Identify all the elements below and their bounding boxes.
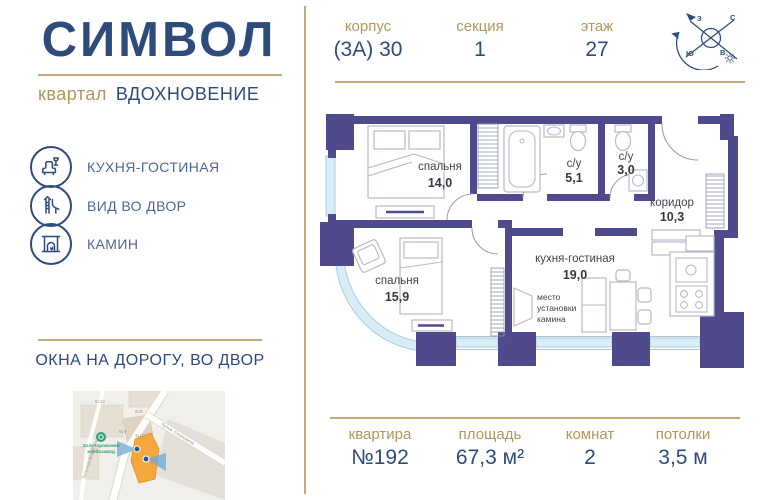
fridge [686,236,714,251]
map-building-label: 6с12 [95,399,105,404]
stat-label: комнат [540,426,640,443]
stat-label: потолки [633,426,733,443]
stat-value: №192 [330,446,430,470]
window [650,338,700,347]
bathtub [504,126,540,192]
stat-area: площадь 67,3 м² [440,426,540,470]
stat-label: этаж [547,18,647,35]
armchair [352,239,387,274]
compass-icon: З С Ю В [664,8,756,75]
stat-ceiling: потолки 3,5 м [633,426,733,470]
fireplace-unit [514,288,532,326]
stat-apartment: квартира №192 [330,426,430,470]
map-building-label: 6с9 [119,429,127,434]
room-name: коридор [650,197,694,209]
feature-label: ВИД ВО ДВОР [87,198,186,214]
room-area: 15,9 [385,290,409,304]
compass-west: З [697,14,702,23]
room-name: спальня [375,275,419,287]
tv-unit [582,278,606,332]
stat-value: (3А) 30 [318,38,418,62]
toilet [615,125,631,151]
fireplace-note: место [537,292,561,302]
stat-rooms: комнат 2 [540,426,640,470]
map-building-label: 11с2 [135,433,145,438]
stat-floor: этаж 27 [547,18,647,62]
stat-value: 27 [547,38,647,62]
playground-slide-icon [30,185,72,227]
quarter-label: квартал [38,84,107,104]
room-name: спальня [418,161,462,173]
stat-section: секция 1 [430,18,530,62]
room-area: 3,0 [617,163,634,177]
compass-south: Ю [686,49,694,58]
room-area: 10,3 [660,210,684,224]
room-area: 14,0 [428,176,452,190]
header-divider [335,81,745,83]
footer-divider [330,417,740,419]
stat-value: 1 [430,38,530,62]
feature-label: КАМИН [87,236,138,252]
windows-note: ОКНА НА ДОРОГУ, ВО ДВОР [20,352,280,370]
room-name: кухня-гостиная [535,253,615,265]
floor-plan: спальня 14,0 с/у 5,1 с/у 3,0 коридор 10,… [312,110,744,381]
stat-label: квартира [330,426,430,443]
map-view-marker [143,456,149,462]
feature-fireplace: КАМИН [30,224,300,264]
room-name: с/у [619,151,634,163]
dining-table [610,270,651,330]
fireplace-note: установки [537,303,577,313]
room-area: 5,1 [565,171,582,185]
stat-label: секция [430,18,530,35]
window [536,338,612,347]
stat-building: корпус (3А) 30 [318,18,418,62]
brand-tagline: кварталВДОХНОВЕНИЕ [38,84,286,105]
sink [544,125,564,137]
quarter-name: ВДОХНОВЕНИЕ [116,84,259,104]
stat-value: 2 [540,446,640,470]
feature-courtyard-view: ВИД ВО ДВОР [30,186,300,226]
logo-underline [38,74,282,76]
toilet [570,125,586,151]
stat-value: 3,5 м [633,446,733,470]
divider-line [38,339,262,341]
stat-label: площадь [440,426,540,443]
window [456,338,498,347]
feature-kitchen-living: КУХНЯ-ГОСТИНАЯ [30,147,300,187]
stat-value: 67,3 м² [440,446,540,470]
window [326,156,335,216]
stat-label: корпус [318,18,418,35]
sun-glyph [725,53,735,63]
map-poi-name: Золоторожский [83,442,120,449]
map-view-marker [134,446,140,452]
room-name: с/у [567,158,582,170]
compass-east: В [720,48,726,57]
fireplace-note: камина [537,314,566,324]
room-area: 19,0 [563,268,587,282]
armchair-lamp-icon [30,146,72,188]
compass-north: С [730,13,736,22]
vertical-divider [304,6,306,494]
feature-label: КУХНЯ-ГОСТИНАЯ [87,159,220,175]
kitchen-counter [670,252,714,316]
fireplace-icon [30,223,72,265]
brand-logo: СИМВОЛ [33,12,285,68]
map-building-label: 6с8 [135,409,143,414]
location-map[interactable]: Золоторожский хлебозавод 6с12 6с8 6с9 11… [73,391,225,500]
